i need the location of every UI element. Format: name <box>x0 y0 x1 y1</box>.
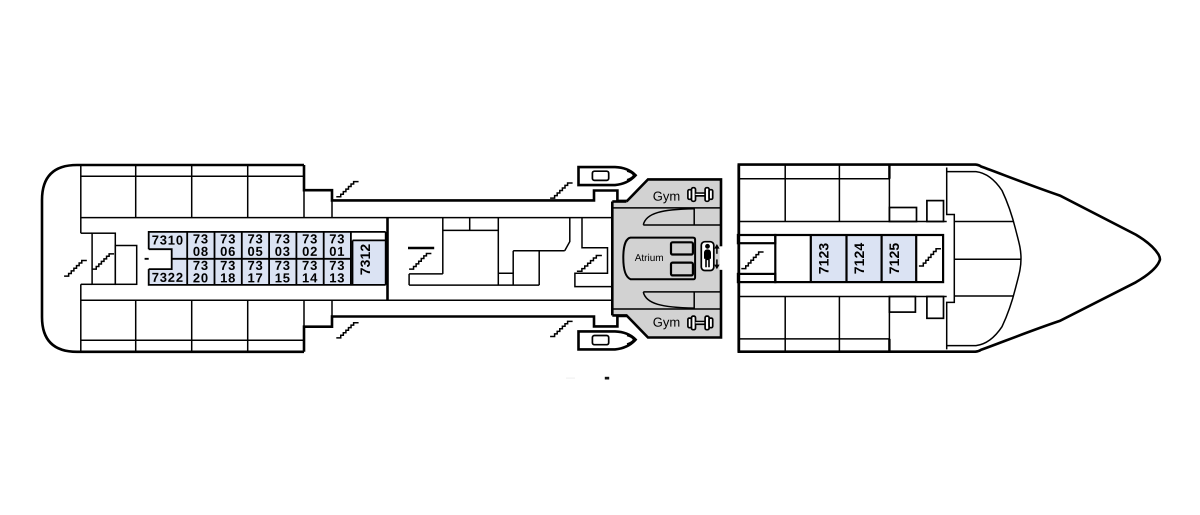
svg-text:02: 02 <box>302 244 318 259</box>
svg-text:7312: 7312 <box>357 244 373 276</box>
svg-text:7322: 7322 <box>152 270 184 285</box>
svg-text:7123: 7123 <box>816 243 832 275</box>
svg-text:15: 15 <box>275 270 291 285</box>
svg-text:18: 18 <box>220 270 236 285</box>
svg-text:7125: 7125 <box>886 243 902 275</box>
svg-text:17: 17 <box>247 270 263 285</box>
svg-text:01: 01 <box>329 244 345 259</box>
svg-text:Gym: Gym <box>653 189 680 204</box>
svg-text:06: 06 <box>220 244 236 259</box>
svg-text:05: 05 <box>247 244 263 259</box>
svg-text:20: 20 <box>193 270 209 285</box>
svg-text:14: 14 <box>302 270 318 285</box>
svg-text:7310: 7310 <box>152 233 184 248</box>
svg-text:03: 03 <box>275 244 291 259</box>
svg-text:08: 08 <box>193 244 209 259</box>
svg-text:7124: 7124 <box>851 243 867 275</box>
svg-text:13: 13 <box>329 270 345 285</box>
svg-text:Atrium: Atrium <box>635 253 664 264</box>
svg-text:Gym: Gym <box>653 315 680 330</box>
